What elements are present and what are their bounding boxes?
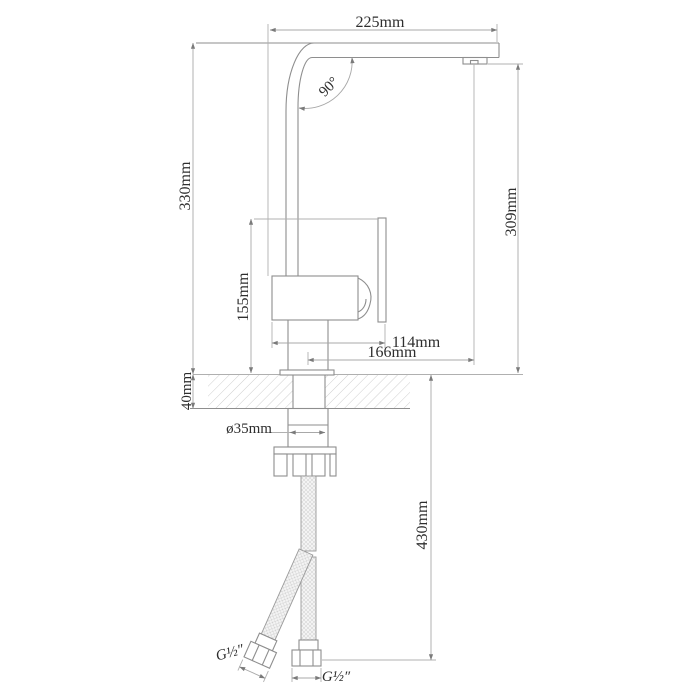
dim-line-thread-left (240, 667, 266, 678)
supply-hoses (238, 476, 321, 682)
lock-nut (274, 447, 336, 476)
hose-vertical-nut (292, 650, 321, 666)
bend-angle-label: 90° (316, 74, 342, 100)
hose-length-label: 430mm (414, 500, 431, 549)
hose-vertical-upper (301, 476, 316, 551)
body-height-label: 155mm (235, 272, 252, 321)
countertop-hatch-left (208, 375, 293, 408)
base-flange (280, 370, 334, 375)
height-left-label: 330mm (177, 161, 194, 210)
handle-back-plate (378, 218, 386, 322)
drawing-canvas: 225mm 330mm 309mm 90° 155mm 114mm 166mm … (0, 0, 700, 700)
handle-lever-detail (358, 299, 366, 312)
handle-lever (358, 278, 371, 319)
hose-vertical-ferrule (299, 640, 318, 650)
deck-thickness-label: 40mm (179, 372, 195, 411)
spout-length-label: 225mm (356, 14, 405, 31)
threaded-shank (288, 409, 328, 448)
bend-outer-curve (286, 43, 314, 111)
mixer-body (272, 276, 358, 320)
spout-reach-label: 166mm (368, 344, 417, 361)
countertop (190, 375, 523, 409)
faucet-technical-drawing: 225mm 330mm 309mm 90° 155mm 114mm 166mm … (0, 0, 700, 700)
hole-diameter-label: ø35mm (226, 421, 272, 437)
thread-right-label: G½″ (322, 669, 351, 685)
height-right-label: 309mm (503, 187, 520, 236)
bend-inner-curve (298, 58, 312, 108)
countertop-hatch-right (325, 375, 410, 408)
dimension-labels: 225mm 330mm 309mm 90° 155mm 114mm 166mm … (177, 14, 520, 685)
thread-left-label: G½″ (214, 642, 246, 665)
faucet-outline (196, 43, 499, 476)
dimension-lines (193, 24, 523, 682)
